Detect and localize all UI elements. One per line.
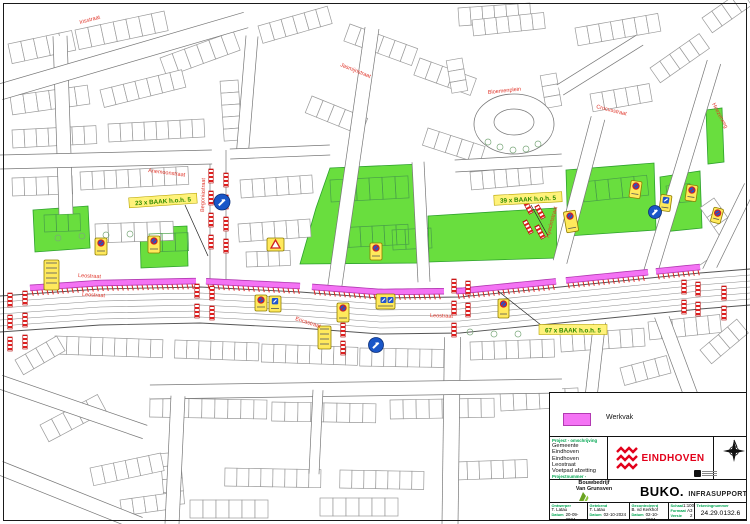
baak-count-label: 67 x BAAK h.o.h. 5 bbox=[539, 325, 607, 335]
barrier-icon bbox=[209, 169, 213, 183]
building-row bbox=[702, 0, 750, 33]
street-name-label: Irisstraat bbox=[79, 15, 101, 26]
blue-arrow-sign bbox=[214, 194, 230, 210]
building-row bbox=[12, 126, 97, 148]
barrier-icon bbox=[682, 300, 686, 314]
building-row bbox=[320, 498, 398, 516]
barrier-icon bbox=[341, 341, 345, 355]
text-sign bbox=[318, 326, 331, 349]
building-row bbox=[225, 468, 321, 488]
building-row bbox=[108, 119, 205, 142]
werkvak-legend-label: Werkvak bbox=[606, 414, 633, 421]
barrier-icon bbox=[8, 315, 12, 329]
eindhoven-waves-icon bbox=[616, 446, 638, 470]
building-row bbox=[344, 24, 418, 66]
title-block: Werkvak Project - omschrijving Gemeente … bbox=[549, 392, 747, 520]
field-tekeningnummer: Tekeningnummer 24.29.0132.6 bbox=[695, 503, 746, 520]
barrier-icon bbox=[195, 304, 199, 318]
barrier-icon bbox=[682, 280, 686, 294]
barrier-icon bbox=[209, 235, 213, 249]
building-row bbox=[390, 398, 494, 419]
barrier-icon bbox=[224, 239, 228, 253]
no-parking-sign bbox=[255, 295, 267, 311]
project-info: Project - omschrijving Gemeente Eindhove… bbox=[550, 437, 608, 479]
building-row bbox=[340, 470, 424, 489]
project-line: Gemeente Eindhoven bbox=[552, 443, 605, 456]
building-row bbox=[246, 250, 290, 267]
no-parking-sign bbox=[685, 184, 698, 201]
infrasupport-logo-text: INFRASUPPORT bbox=[688, 491, 747, 498]
building-row bbox=[470, 339, 555, 360]
barrier-icon bbox=[210, 306, 214, 320]
no-parking-sign bbox=[148, 236, 160, 253]
legend: Werkvak bbox=[550, 393, 746, 437]
building-row bbox=[620, 356, 671, 386]
warning-sign bbox=[267, 238, 284, 251]
building-row bbox=[80, 166, 189, 190]
barrier-icon bbox=[696, 302, 700, 316]
no-parking-sign bbox=[629, 180, 642, 198]
barrier-icon bbox=[452, 279, 456, 293]
building-row bbox=[150, 398, 267, 419]
building-row bbox=[54, 336, 163, 358]
title-block-mid-row: Project - omschrijving Gemeente Eindhove… bbox=[550, 437, 746, 480]
street-name-label: Leostraat bbox=[430, 313, 454, 320]
baak-count-label: 23 x BAAK h.o.h. 5 bbox=[129, 193, 198, 208]
barrier-icon bbox=[224, 217, 228, 231]
barrier-icon bbox=[8, 293, 12, 307]
barrier-icon bbox=[23, 335, 27, 349]
barrier-icon bbox=[209, 213, 213, 227]
barrier-icon bbox=[224, 173, 228, 187]
barrier-icon bbox=[210, 286, 214, 300]
field-ontwerper: Ontwerper T. Latau Datum20-09-2024 bbox=[550, 503, 588, 520]
text-sign bbox=[44, 260, 59, 290]
drawing-number: 24.29.0132.6 bbox=[697, 510, 745, 517]
svg-text:67 x BAAK h.o.h. 5: 67 x BAAK h.o.h. 5 bbox=[545, 327, 601, 334]
compass-cell bbox=[714, 437, 748, 479]
barrier-icon bbox=[722, 306, 726, 320]
field-schaal-formaat-versie: Schaal1:1000 FormaatA3 Versie2 bbox=[669, 503, 695, 520]
projectnummer-label: Projectnummer - bbox=[552, 474, 605, 479]
building-row bbox=[455, 459, 528, 480]
blue-arrow-sign bbox=[369, 338, 384, 353]
building-row bbox=[190, 500, 268, 518]
direction-signs bbox=[376, 294, 395, 309]
building-row bbox=[174, 340, 259, 361]
street-name-label: Leostraat bbox=[82, 292, 106, 299]
buko-logo-text: BUKO. bbox=[640, 484, 684, 499]
no-parking-sign bbox=[498, 299, 509, 318]
north-arrow-icon bbox=[714, 437, 748, 467]
building-row bbox=[650, 34, 709, 83]
main-road bbox=[0, 269, 750, 334]
bloemenplein-circle bbox=[474, 94, 554, 154]
building-row bbox=[90, 453, 164, 486]
barrier-icon bbox=[696, 282, 700, 296]
no-parking-sign bbox=[95, 238, 107, 255]
barrier-icon bbox=[722, 286, 726, 300]
building-row bbox=[540, 73, 561, 108]
buko-logo: BUKO. INFRASUPPORT bbox=[640, 483, 747, 501]
barrier-icon bbox=[466, 303, 470, 317]
eindhoven-logo-text: EINDHOVEN bbox=[641, 453, 704, 464]
barrier-icon bbox=[466, 281, 470, 295]
direction-sign bbox=[269, 296, 281, 312]
barrier-icon bbox=[452, 323, 456, 337]
contractor-name: Bouwbedrijf Van Grunsven bbox=[564, 481, 624, 493]
barrier-icon bbox=[23, 313, 27, 327]
barrier-icon bbox=[341, 323, 345, 337]
no-parking-sign bbox=[370, 243, 382, 260]
van-grunsven-logo-icon bbox=[578, 492, 589, 502]
no-parking-sign bbox=[337, 303, 349, 322]
building-row bbox=[258, 6, 332, 43]
street-name-label: Begoniastraat bbox=[200, 177, 207, 212]
street-name-label: Leostraat bbox=[78, 273, 102, 280]
werkvak-legend-swatch bbox=[563, 413, 591, 426]
field-gecontroleerd: Gecontroleerd B. vd Kerkhof Datum02-10-2… bbox=[630, 503, 669, 520]
building-row bbox=[272, 402, 376, 423]
contractor-row: Bouwbedrijf Van Grunsven BUKO. INFRASUPP… bbox=[550, 480, 746, 503]
field-getekend: Getekend T. Latau Datum02-10-2024 bbox=[588, 503, 630, 520]
certification-logo bbox=[694, 470, 717, 477]
traffic-plan-drawing: LeostraatLeostraatLeostraatAnemoonstraat… bbox=[0, 0, 750, 524]
barrier-icon bbox=[23, 291, 27, 305]
barrier-icon bbox=[195, 284, 199, 298]
blue-arrow-sign bbox=[649, 206, 662, 219]
barrier-icon bbox=[8, 337, 12, 351]
barrier-icon bbox=[209, 191, 213, 205]
building-row bbox=[240, 175, 313, 198]
building-row bbox=[100, 70, 186, 108]
baak-count-label: 39 x BAAK h.o.h. 5 bbox=[494, 192, 562, 206]
title-block-fields: Ontwerper T. Latau Datum20-09-2024 Getek… bbox=[550, 503, 746, 520]
building-row bbox=[575, 13, 661, 45]
